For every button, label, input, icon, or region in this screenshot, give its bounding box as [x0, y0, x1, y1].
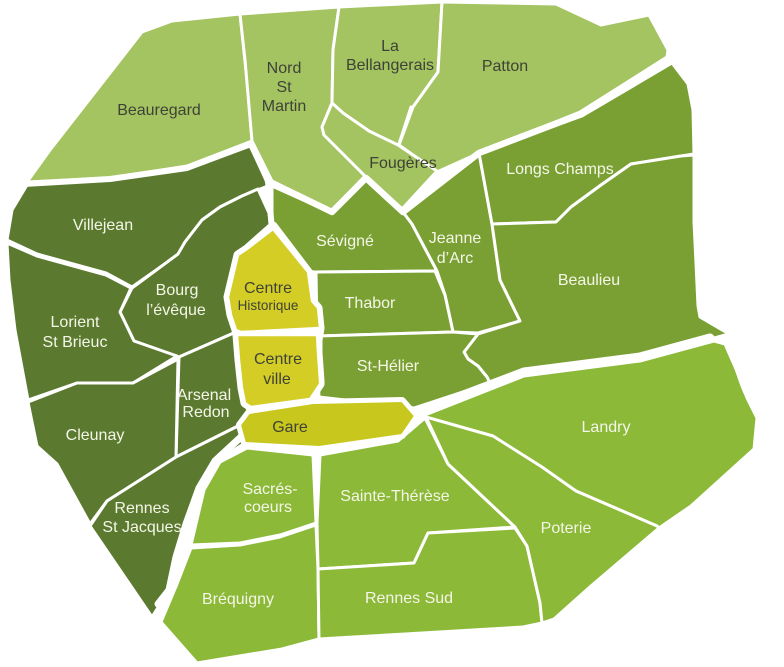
svg-text:Rennes: Rennes — [114, 500, 169, 517]
svg-text:Cleunay: Cleunay — [66, 427, 125, 444]
svg-text:Redon: Redon — [182, 404, 229, 421]
svg-text:Landry: Landry — [582, 419, 631, 436]
svg-text:St: St — [276, 79, 292, 96]
svg-text:Centre: Centre — [244, 280, 292, 297]
svg-text:Jeanne: Jeanne — [429, 230, 482, 247]
svg-text:St-Hélier: St-Hélier — [357, 358, 420, 375]
svg-text:Bourg: Bourg — [156, 282, 199, 299]
svg-text:Nord: Nord — [267, 60, 302, 77]
svg-text:Villejean: Villejean — [73, 217, 133, 234]
svg-text:Lorient: Lorient — [51, 314, 100, 331]
svg-text:Bréquigny: Bréquigny — [202, 591, 274, 608]
svg-text:Poterie: Poterie — [541, 520, 592, 537]
svg-text:Fougères: Fougères — [369, 155, 437, 172]
svg-text:Gare: Gare — [272, 419, 308, 436]
svg-text:Martin: Martin — [262, 98, 306, 115]
svg-text:Sévigné: Sévigné — [316, 233, 374, 250]
svg-text:St Brieuc: St Brieuc — [43, 334, 108, 351]
svg-text:Historique: Historique — [238, 298, 299, 313]
svg-text:St Jacques: St Jacques — [102, 519, 181, 536]
svg-text:coeurs: coeurs — [244, 499, 292, 516]
svg-text:Sainte-Thérèse: Sainte-Thérèse — [340, 488, 449, 505]
svg-text:Longs Champs: Longs Champs — [506, 161, 614, 178]
svg-text:Beauregard: Beauregard — [117, 102, 201, 119]
svg-text:ville: ville — [263, 371, 291, 388]
svg-text:Rennes Sud: Rennes Sud — [365, 590, 453, 607]
svg-text:Beaulieu: Beaulieu — [558, 272, 620, 289]
svg-text:Arsenal: Arsenal — [177, 387, 231, 404]
svg-text:d’Arc: d’Arc — [437, 250, 473, 267]
svg-text:Patton: Patton — [482, 58, 528, 75]
svg-text:Centre: Centre — [254, 351, 302, 368]
svg-text:La: La — [381, 38, 399, 55]
svg-text:Bellangerais: Bellangerais — [346, 57, 434, 74]
svg-text:Thabor: Thabor — [345, 295, 396, 312]
svg-text:Sacrés-: Sacrés- — [242, 481, 297, 498]
svg-text:l’évêque: l’évêque — [146, 302, 206, 319]
